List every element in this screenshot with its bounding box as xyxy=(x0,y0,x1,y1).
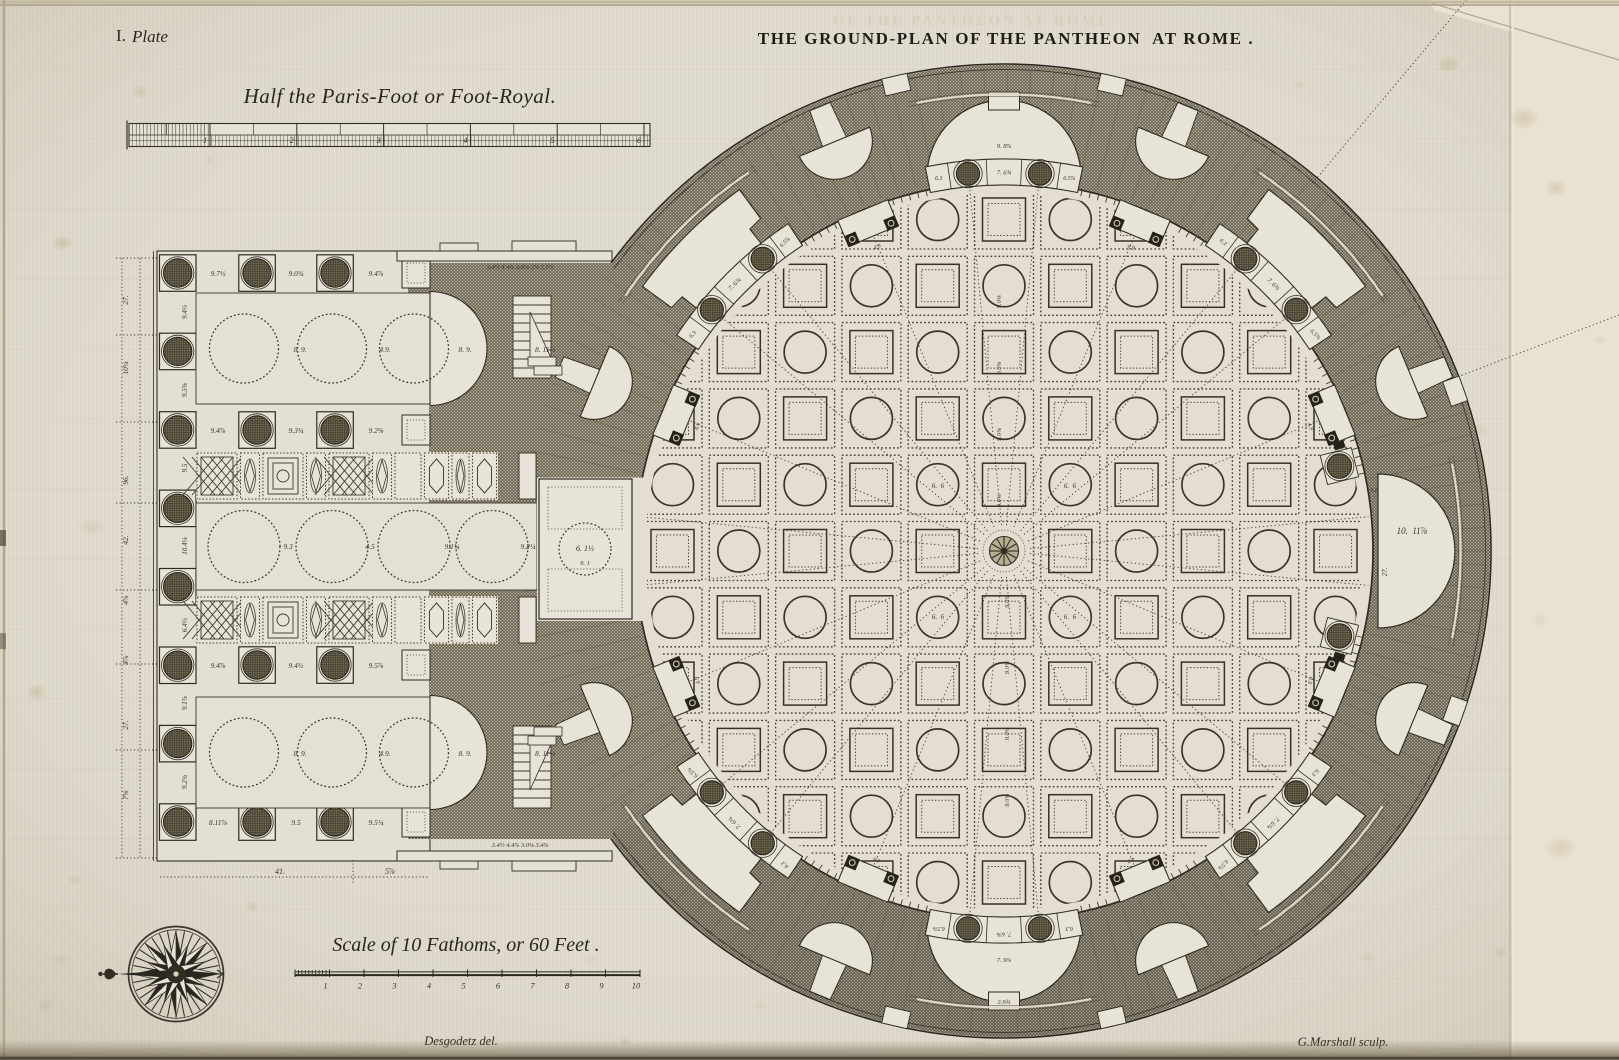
svg-text:8.11⅞: 8.11⅞ xyxy=(209,818,228,827)
svg-text:10. 11⅞: 10. 11⅞ xyxy=(1397,526,1428,536)
svg-text:9.1⅞: 9.1⅞ xyxy=(181,696,189,710)
svg-text:8. 9.: 8. 9. xyxy=(458,749,471,758)
svg-text:3.8: 3.8 xyxy=(1369,487,1379,494)
svg-text:1: 1 xyxy=(323,981,327,991)
svg-text:1: 1 xyxy=(203,136,207,145)
svg-text:9.0⅝: 9.0⅝ xyxy=(1004,727,1011,740)
svg-text:6. 6: 6. 6 xyxy=(1064,613,1077,621)
svg-text:9.4⅞: 9.4⅞ xyxy=(211,426,226,435)
svg-text:5: 5 xyxy=(461,981,465,991)
svg-text:THE GROUND-PLAN OF THE PANTHEO: THE GROUND-PLAN OF THE PANTHEON AT ROME … xyxy=(758,29,1254,48)
svg-text:9.5: 9.5 xyxy=(291,818,301,827)
svg-text:8. 11¼: 8. 11¼ xyxy=(535,345,555,354)
svg-text:4⅞: 4⅞ xyxy=(121,595,130,605)
svg-text:9.5⅞: 9.5⅞ xyxy=(369,661,384,670)
svg-text:9.0⅝: 9.0⅝ xyxy=(996,361,1003,374)
svg-text:8. 9.: 8. 9. xyxy=(458,345,471,354)
svg-text:2: 2 xyxy=(290,136,294,145)
svg-text:3.4½ 4.4⅞ 3.0⅝ 3.4⅞: 3.4½ 4.4⅞ 3.0⅝ 3.4⅞ xyxy=(491,842,549,849)
svg-text:10¼: 10¼ xyxy=(121,361,130,375)
svg-text:9.0⅝: 9.0⅝ xyxy=(1004,794,1011,807)
svg-text:8. 11¼: 8. 11¼ xyxy=(535,749,555,758)
svg-text:6.3: 6.3 xyxy=(1065,925,1073,931)
svg-text:8. 9.: 8. 9. xyxy=(293,749,306,758)
svg-text:9.5: 9.5 xyxy=(181,463,189,472)
svg-text:9.0⅝: 9.0⅝ xyxy=(1004,595,1011,608)
svg-text:6.5⅞: 6.5⅞ xyxy=(932,925,945,931)
svg-text:7. 9⅞: 7. 9⅞ xyxy=(997,957,1012,964)
svg-text:9.2¾: 9.2¾ xyxy=(181,774,189,789)
svg-text:27.: 27. xyxy=(121,720,130,730)
svg-text:6. 6: 6. 6 xyxy=(932,482,945,490)
svg-text:3.4½ 4.4⅞ 3.0⅝ 2⅞ 3.5½: 3.4½ 4.4⅞ 3.0⅝ 2⅞ 3.5½ xyxy=(486,264,554,271)
svg-text:9.4⅞: 9.4⅞ xyxy=(211,661,226,670)
svg-text:42.: 42. xyxy=(121,535,130,545)
svg-text:I.: I. xyxy=(116,26,126,45)
svg-text:6. 1½: 6. 1½ xyxy=(576,544,594,553)
svg-text:10: 10 xyxy=(632,981,641,991)
svg-text:4.9.: 4.9. xyxy=(379,749,390,758)
svg-text:4.9.: 4.9. xyxy=(379,345,390,354)
svg-text:9.2⅝: 9.2⅝ xyxy=(369,426,384,435)
svg-text:41.: 41. xyxy=(275,867,285,876)
svg-text:Half the Paris-Foot or Foot-Ro: Half the Paris-Foot or Foot-Royal. xyxy=(243,84,557,108)
svg-text:9.7½: 9.7½ xyxy=(211,269,226,278)
svg-text:3.9¾: 3.9¾ xyxy=(997,999,1011,1006)
svg-text:9.3: 9.3 xyxy=(283,542,293,551)
svg-text:6. 6: 6. 6 xyxy=(932,613,945,621)
svg-text:Scale of 10 Fathoms, or 60 Fee: Scale of 10 Fathoms, or 60 Feet . xyxy=(332,934,599,956)
svg-text:96.: 96. xyxy=(121,475,130,485)
svg-text:9. 1: 9. 1 xyxy=(580,560,590,567)
svg-text:Plate: Plate xyxy=(131,27,168,46)
svg-text:6.4½: 6.4½ xyxy=(181,617,189,632)
svg-text:9.4½: 9.4½ xyxy=(181,304,189,319)
svg-text:27.: 27. xyxy=(1381,567,1389,576)
svg-text:3: 3 xyxy=(391,981,396,991)
svg-text:9.0⅝: 9.0⅝ xyxy=(996,295,1003,308)
svg-text:9.2¼: 9.2¼ xyxy=(521,542,536,551)
svg-text:4⅞: 4⅞ xyxy=(121,655,130,665)
svg-text:9.0⅝: 9.0⅝ xyxy=(996,428,1003,441)
svg-text:9.0¾: 9.0¾ xyxy=(289,269,304,278)
svg-text:9.1¼: 9.1¼ xyxy=(445,542,460,551)
svg-text:6.5⅞: 6.5⅞ xyxy=(1063,176,1076,182)
svg-text:9.0⅝: 9.0⅝ xyxy=(996,494,1003,507)
svg-text:7. 6¾: 7. 6¾ xyxy=(997,931,1012,938)
svg-text:3: 3 xyxy=(376,136,381,145)
svg-text:9. 8⅞: 9. 8⅞ xyxy=(997,143,1012,150)
svg-text:5⅞: 5⅞ xyxy=(385,867,395,876)
svg-text:9.5⅜: 9.5⅜ xyxy=(181,382,189,397)
svg-text:6. 6: 6. 6 xyxy=(1064,482,1077,490)
svg-text:9.4⅞: 9.4⅞ xyxy=(369,269,384,278)
svg-text:9.5¼: 9.5¼ xyxy=(369,818,384,827)
svg-text:9.0⅝: 9.0⅝ xyxy=(1004,661,1011,674)
svg-text:9.4½: 9.4½ xyxy=(289,661,304,670)
svg-text:7⅝: 7⅝ xyxy=(121,790,130,800)
svg-text:7. 6¾: 7. 6¾ xyxy=(997,170,1012,177)
svg-text:OF THE PANTHEON AT ROME: OF THE PANTHEON AT ROME xyxy=(833,13,1111,29)
svg-text:9.3¼: 9.3¼ xyxy=(289,426,304,435)
svg-text:6.3: 6.3 xyxy=(935,176,943,182)
svg-text:10.4¼: 10.4¼ xyxy=(181,537,189,555)
svg-text:4.5: 4.5 xyxy=(365,542,375,551)
svg-text:27.: 27. xyxy=(121,295,130,305)
svg-text:8. 9.: 8. 9. xyxy=(293,345,306,354)
